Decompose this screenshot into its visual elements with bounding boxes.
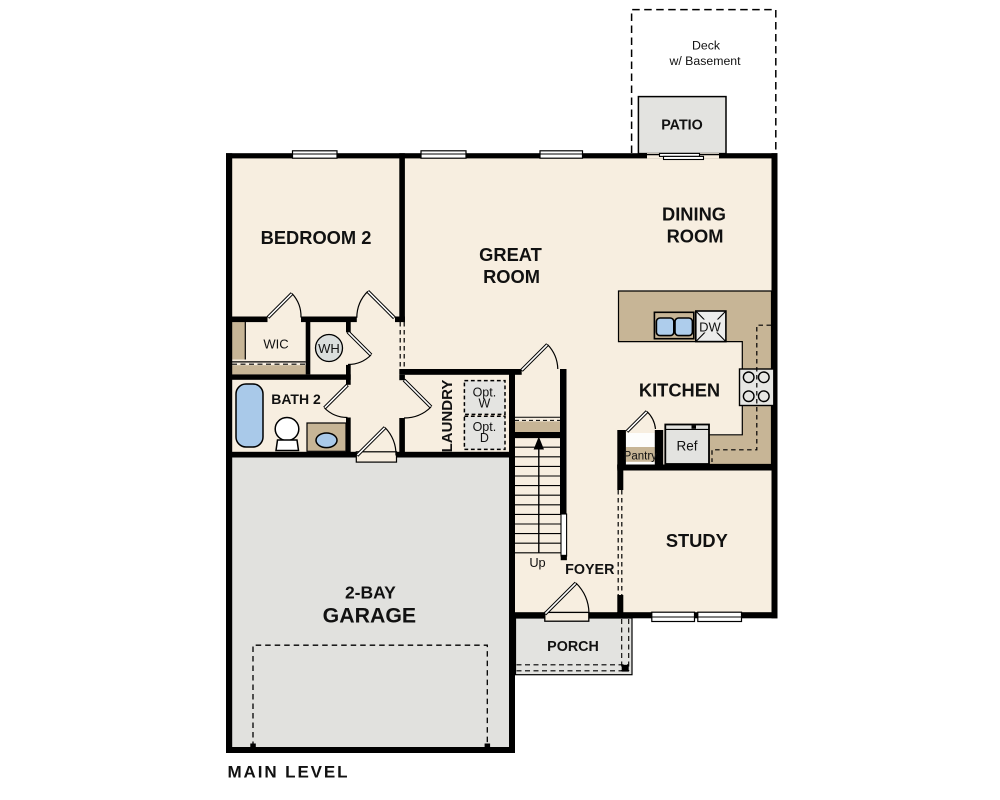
svg-text:KITCHEN: KITCHEN [639, 379, 720, 400]
svg-text:PATIO: PATIO [661, 117, 703, 133]
svg-text:DW: DW [699, 319, 721, 334]
svg-text:FOYER: FOYER [565, 562, 615, 578]
svg-text:w/ Basement: w/ Basement [668, 54, 741, 68]
svg-text:GARAGE: GARAGE [323, 604, 416, 628]
svg-text:Ref: Ref [676, 439, 697, 454]
svg-text:MAIN LEVEL: MAIN LEVEL [228, 762, 350, 781]
svg-text:DINING: DINING [662, 203, 726, 224]
svg-text:GREAT: GREAT [479, 244, 542, 265]
svg-text:Deck: Deck [692, 39, 721, 53]
svg-text:Pantry: Pantry [624, 451, 657, 463]
svg-text:LAUNDRY: LAUNDRY [439, 380, 456, 453]
svg-text:Up: Up [529, 555, 545, 570]
svg-text:BEDROOM 2: BEDROOM 2 [261, 227, 372, 248]
svg-text:BATH 2: BATH 2 [271, 391, 321, 407]
svg-text:STUDY: STUDY [666, 530, 728, 551]
svg-text:ROOM: ROOM [667, 226, 724, 247]
svg-text:2-BAY: 2-BAY [345, 583, 396, 603]
svg-text:W: W [478, 397, 490, 411]
svg-text:WH: WH [318, 341, 340, 356]
svg-text:WIC: WIC [263, 336, 288, 351]
svg-text:PORCH: PORCH [547, 639, 599, 655]
svg-text:ROOM: ROOM [483, 266, 540, 287]
svg-text:D: D [480, 431, 489, 445]
